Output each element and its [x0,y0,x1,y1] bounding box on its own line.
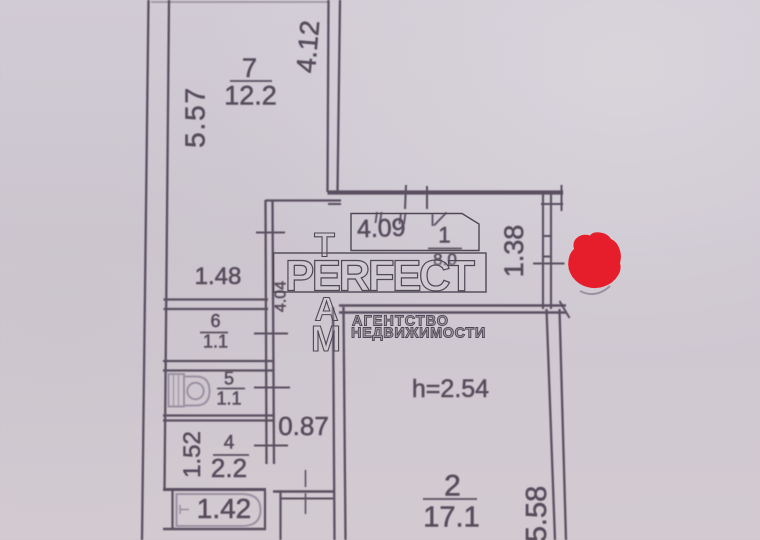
svg-text:4.09: 4.09 [356,214,406,244]
svg-text:12.2: 12.2 [224,81,277,111]
svg-text:1.42: 1.42 [197,493,252,524]
svg-text:1: 1 [438,223,450,248]
svg-text:M: M [311,318,341,359]
svg-text:5.57: 5.57 [180,86,211,148]
svg-text:1.38: 1.38 [499,225,529,278]
svg-text:1.52: 1.52 [179,431,206,478]
svg-text:7: 7 [242,53,257,83]
svg-text:4.12: 4.12 [291,19,325,74]
svg-text:НЕДВИЖИМОСТИ: НЕДВИЖИМОСТИ [351,326,486,342]
svg-text:17.1: 17.1 [423,502,479,534]
svg-text:1.1: 1.1 [203,332,228,352]
svg-text:2.2: 2.2 [211,453,247,483]
svg-text:2: 2 [444,470,461,503]
svg-text:1.48: 1.48 [195,263,242,290]
svg-text:T: T [314,227,335,265]
svg-text:5: 5 [224,369,234,389]
svg-text:5.58: 5.58 [521,486,553,540]
svg-text:6: 6 [210,311,220,331]
svg-text:1.1: 1.1 [216,389,241,409]
svg-text:h=2.54: h=2.54 [412,375,489,403]
svg-text:0.87: 0.87 [278,411,329,441]
svg-text:4: 4 [224,433,235,454]
